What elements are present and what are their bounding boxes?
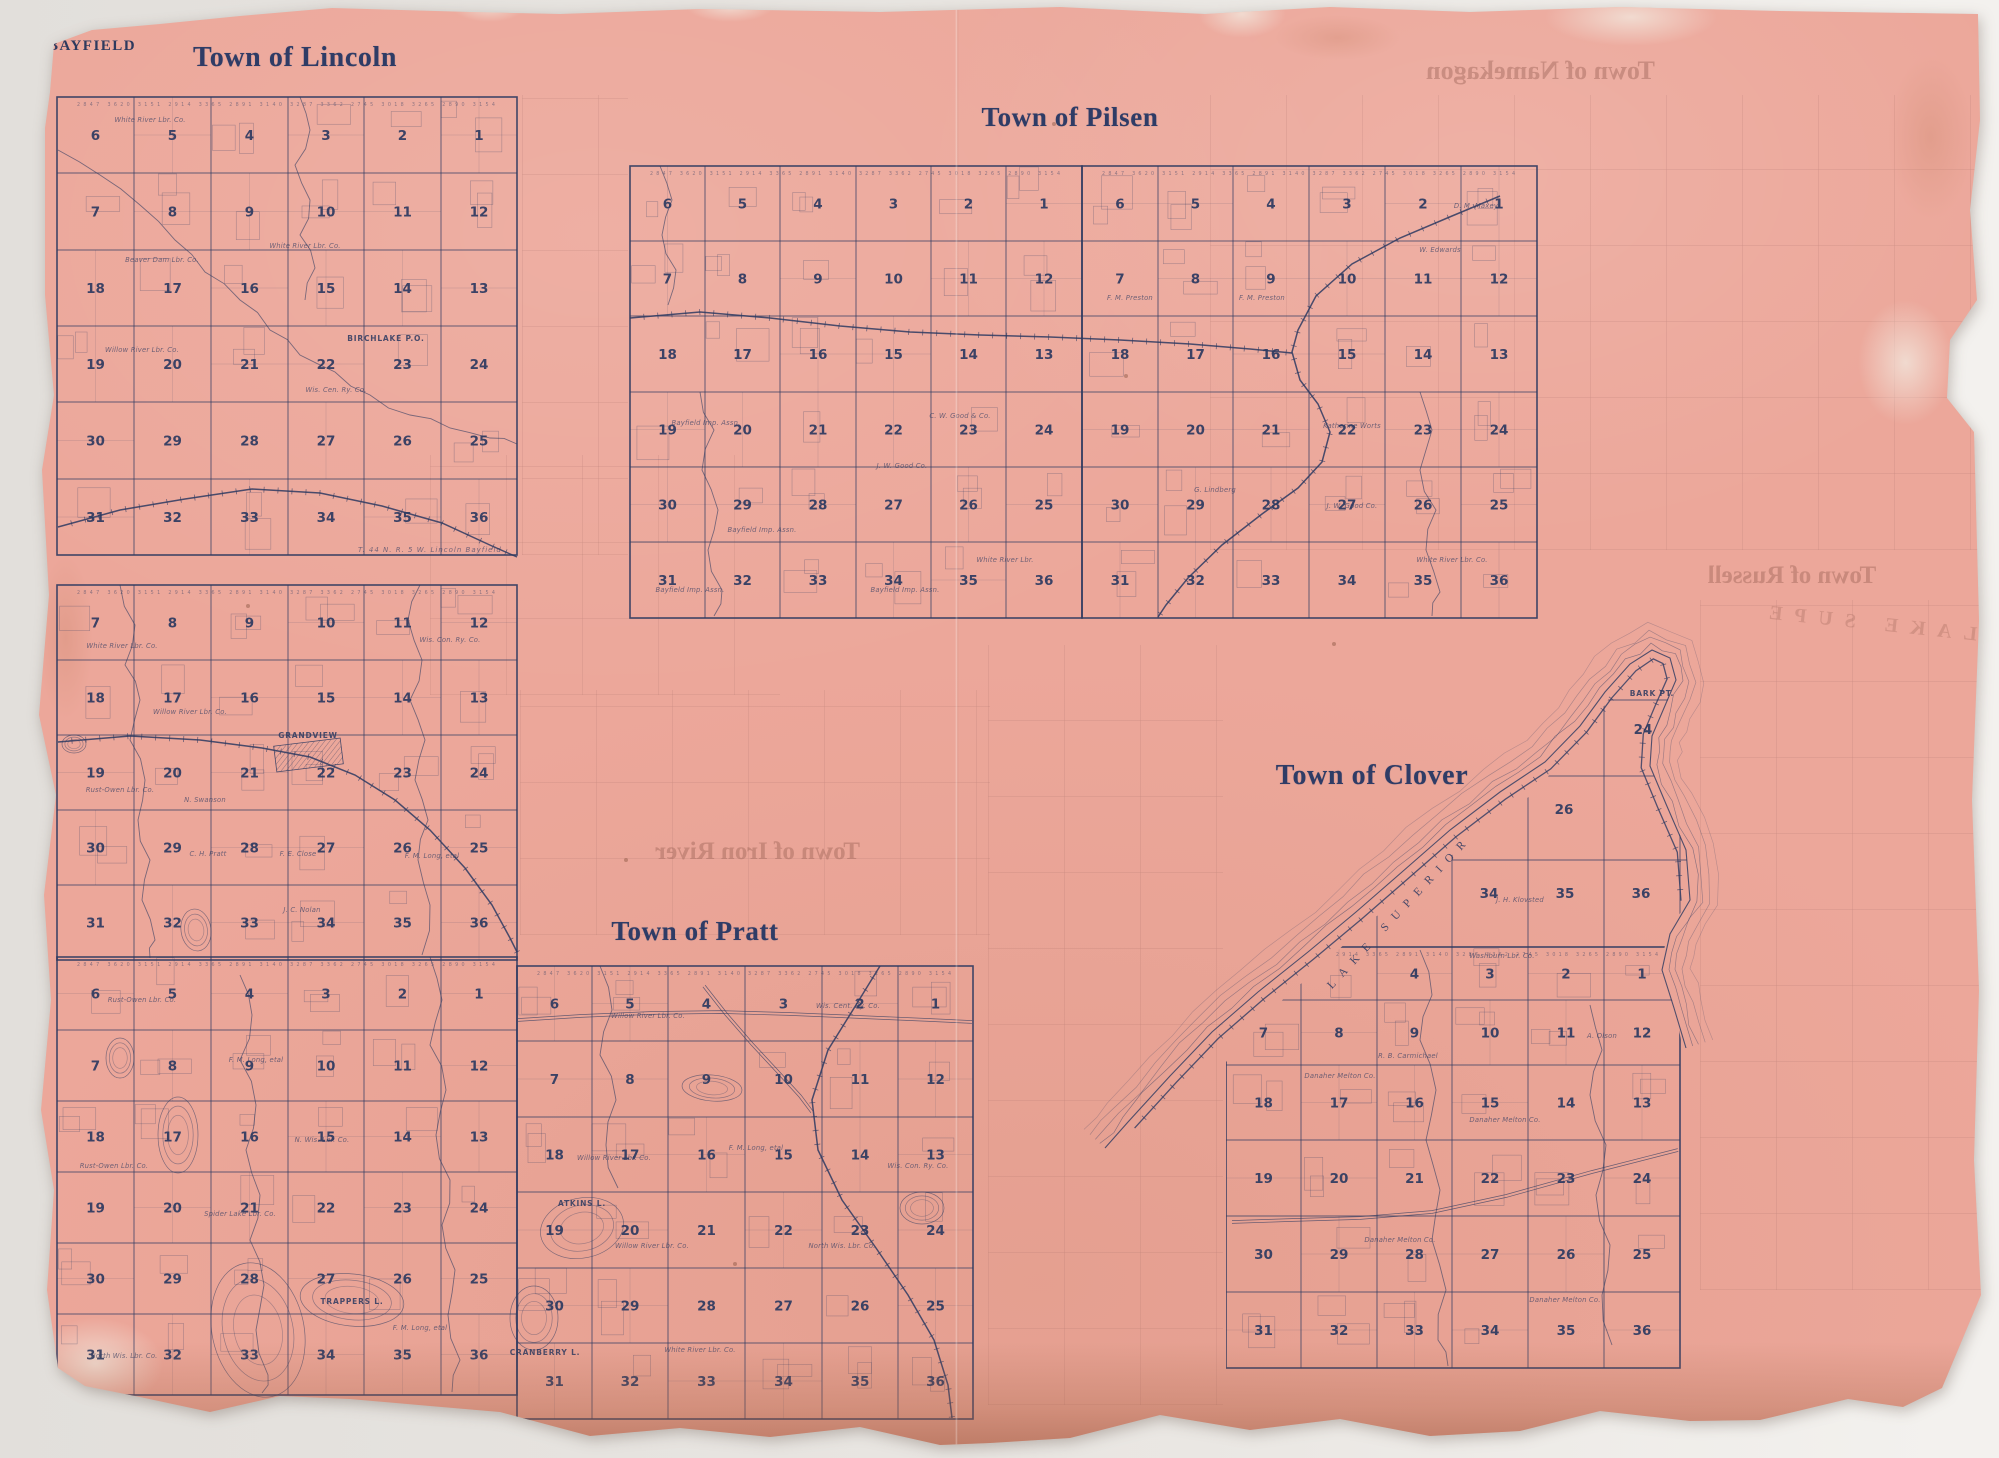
section-number: 16 bbox=[240, 691, 259, 707]
section-number: 17 bbox=[163, 691, 182, 707]
section-number: 14 bbox=[851, 1148, 870, 1164]
section-number: 27 bbox=[317, 841, 336, 857]
section-number: 24 bbox=[1490, 423, 1509, 439]
section-number: 2 bbox=[964, 197, 973, 213]
section-number: 11 bbox=[851, 1072, 870, 1088]
owner-label: Danaher Melton Co. bbox=[1304, 1072, 1375, 1080]
section-number: 35 bbox=[959, 573, 978, 589]
section-number: 7 bbox=[91, 205, 100, 221]
section-number: 24 bbox=[1633, 1171, 1652, 1187]
section-number: 5 bbox=[738, 197, 747, 213]
owner-label: Willow River Lbr. Co. bbox=[153, 708, 227, 716]
section-number: 34 bbox=[1338, 573, 1357, 589]
section-number: 18 bbox=[86, 1130, 105, 1146]
section-number: 12 bbox=[470, 1059, 489, 1075]
section-number: 14 bbox=[393, 691, 412, 707]
owner-label: W. Edwards bbox=[1419, 246, 1461, 254]
section-number: 2 bbox=[1561, 967, 1570, 983]
section-number: 24 bbox=[470, 1201, 489, 1217]
section-number: 11 bbox=[393, 1059, 412, 1075]
section-number: 14 bbox=[393, 1130, 412, 1146]
section-number: 24 bbox=[470, 357, 489, 373]
section-number: 4 bbox=[1410, 967, 1419, 983]
section-number: 7 bbox=[550, 1072, 559, 1088]
owner-label: G. Lindberg bbox=[1194, 486, 1236, 494]
section-number: 6 bbox=[550, 997, 559, 1013]
section-number: 8 bbox=[1191, 272, 1200, 288]
section-number: 21 bbox=[809, 423, 828, 439]
section-number: 28 bbox=[240, 841, 259, 857]
section-number: 9 bbox=[245, 205, 254, 221]
section-number: 25 bbox=[470, 841, 489, 857]
owner-label: N. Swanson bbox=[184, 796, 226, 804]
center-fold-crease bbox=[955, 0, 959, 1458]
section-number: 18 bbox=[86, 691, 105, 707]
section-number: 3 bbox=[889, 197, 898, 213]
section-number: 10 bbox=[1338, 272, 1357, 288]
map-title-pilsen: Town of Pilsen bbox=[975, 102, 1165, 133]
acreage-figures: 2847 3620 3151 2914 3365 2891 3140 3287 … bbox=[77, 102, 497, 108]
section-number: 16 bbox=[240, 281, 259, 297]
section-number: 32 bbox=[733, 573, 752, 589]
section-number: 7 bbox=[91, 1059, 100, 1075]
section-number: 13 bbox=[1633, 1096, 1652, 1112]
owner-label: Wis. Con. Ry. Co. bbox=[887, 1162, 948, 1170]
section-number: 26 bbox=[959, 498, 978, 514]
section-number: 14 bbox=[959, 347, 978, 363]
section-number: 7 bbox=[91, 616, 100, 632]
section-number: 1 bbox=[474, 987, 483, 1003]
section-number: 5 bbox=[1191, 197, 1200, 213]
owner-label: North Wis. Lbr. Co. bbox=[808, 1242, 875, 1250]
owner-label: F. M. Long, etal bbox=[229, 1056, 284, 1064]
section-number: 11 bbox=[959, 272, 978, 288]
section-number: 36 bbox=[1035, 573, 1054, 589]
owner-label: Willow River Lbr. Co. bbox=[615, 1242, 689, 1250]
owner-label: Willow River Lbr. Co. bbox=[611, 1012, 685, 1020]
section-number: 20 bbox=[163, 357, 182, 373]
section-number: 8 bbox=[625, 1072, 634, 1088]
owner-label: J. C. Nolan bbox=[281, 906, 320, 914]
owner-label: Willow River Lbr. Co. bbox=[105, 346, 179, 354]
section-number: 35 bbox=[1556, 886, 1575, 902]
section-number: 27 bbox=[317, 434, 336, 450]
township-map-clover: 2847 3620 3151 2914 3365 2891 3140 3287 … bbox=[1084, 622, 1719, 1368]
section-number: 29 bbox=[163, 841, 182, 857]
section-number: 29 bbox=[1330, 1247, 1349, 1263]
section-number: 14 bbox=[1557, 1096, 1576, 1112]
owner-label: Danaher Melton Co. bbox=[1469, 1116, 1540, 1124]
map-title-lincoln: Town of Lincoln bbox=[190, 42, 400, 74]
section-number: 27 bbox=[1338, 498, 1357, 514]
section-number: 16 bbox=[240, 1130, 259, 1146]
section-number: 27 bbox=[884, 498, 903, 514]
section-number: 28 bbox=[1262, 498, 1281, 514]
map-title-pratt: Town of Pratt bbox=[606, 916, 784, 947]
section-number: 29 bbox=[163, 434, 182, 450]
section-number: 29 bbox=[163, 1272, 182, 1288]
section-number: 11 bbox=[1557, 1026, 1576, 1042]
section-number: 23 bbox=[1414, 423, 1433, 439]
section-number: 25 bbox=[1633, 1247, 1652, 1263]
section-number: 11 bbox=[1414, 272, 1433, 288]
section-number: 23 bbox=[393, 766, 412, 782]
owner-label: A. Olson bbox=[1586, 1032, 1617, 1040]
township-maps-canvas: 2847 3620 3151 2914 3365 2891 3140 3287 … bbox=[0, 0, 1999, 1458]
section-number: 34 bbox=[1481, 1323, 1500, 1339]
section-number: 22 bbox=[317, 1201, 336, 1217]
section-number: 1 bbox=[931, 997, 940, 1013]
map-title-clover: Town of Clover bbox=[1272, 760, 1472, 792]
section-number: 19 bbox=[86, 1201, 105, 1217]
section-number: 28 bbox=[1405, 1247, 1424, 1263]
section-number: 17 bbox=[163, 281, 182, 297]
section-number: 15 bbox=[317, 691, 336, 707]
section-number: 29 bbox=[621, 1299, 640, 1315]
plat-paper-sheet: Town of NamekagonTown of RussellTown of … bbox=[0, 0, 1999, 1458]
section-number: 20 bbox=[163, 766, 182, 782]
section-number: 36 bbox=[1632, 886, 1651, 902]
owner-label: Rust-Owen Lbr. Co. bbox=[108, 996, 177, 1004]
owner-label: Washburn Lbr. Co. bbox=[1469, 952, 1534, 960]
section-number: 30 bbox=[86, 1272, 105, 1288]
owner-label: White River Lbr. Co. bbox=[86, 642, 157, 650]
section-number: 16 bbox=[1262, 347, 1281, 363]
section-number: 26 bbox=[1557, 1247, 1576, 1263]
section-number: 3 bbox=[1485, 967, 1494, 983]
owner-label: Wis. Con. Ry. Co. bbox=[419, 636, 480, 644]
section-number: 12 bbox=[1490, 272, 1509, 288]
section-number: 3 bbox=[321, 128, 330, 144]
section-number: 13 bbox=[1035, 347, 1054, 363]
section-number: 16 bbox=[1405, 1096, 1424, 1112]
section-number: 3 bbox=[321, 987, 330, 1003]
section-number: 18 bbox=[1111, 347, 1130, 363]
section-number: 33 bbox=[1262, 573, 1281, 589]
section-number: 21 bbox=[1262, 423, 1281, 439]
section-number: 6 bbox=[91, 987, 100, 1003]
section-number: 36 bbox=[470, 916, 489, 932]
owner-label: White River Lbr. bbox=[976, 556, 1033, 564]
section-number: 11 bbox=[393, 205, 412, 221]
section-number: 19 bbox=[1111, 423, 1130, 439]
section-number: 30 bbox=[1111, 498, 1130, 514]
section-number: 30 bbox=[1254, 1247, 1273, 1263]
section-number: 32 bbox=[163, 510, 182, 526]
owner-label: Danaher Melton Co. bbox=[1529, 1296, 1600, 1304]
section-number: 21 bbox=[1405, 1171, 1424, 1187]
owner-label: Wis. Cent. Ry. Co. bbox=[816, 1002, 880, 1010]
section-number: 17 bbox=[1186, 347, 1205, 363]
section-number: 4 bbox=[813, 197, 822, 213]
section-number: 21 bbox=[697, 1223, 716, 1239]
owner-label: Danaher Melton Co. bbox=[1364, 1236, 1435, 1244]
section-number: 15 bbox=[317, 281, 336, 297]
section-number: 12 bbox=[926, 1072, 945, 1088]
section-number: 24 bbox=[926, 1223, 945, 1239]
acreage-figures: 2847 3620 3151 2914 3365 2891 3140 3287 … bbox=[1102, 171, 1517, 177]
section-number: 4 bbox=[245, 128, 254, 144]
owner-label: Bayfield Imp. Assn. bbox=[656, 586, 725, 594]
owner-label: F. E. Close bbox=[280, 850, 317, 858]
section-number: 14 bbox=[1414, 347, 1433, 363]
section-number: 6 bbox=[91, 128, 100, 144]
section-number: 21 bbox=[240, 766, 259, 782]
section-number: 1 bbox=[1637, 967, 1646, 983]
section-number: 28 bbox=[240, 434, 259, 450]
section-number: 36 bbox=[1633, 1323, 1652, 1339]
section-number: 7 bbox=[663, 272, 672, 288]
section-number: 26 bbox=[393, 1272, 412, 1288]
section-number: 25 bbox=[470, 1272, 489, 1288]
water-hachure bbox=[1095, 637, 1703, 1139]
section-number: 18 bbox=[1254, 1096, 1273, 1112]
section-number: 24 bbox=[1035, 423, 1054, 439]
scanned-plat-page: Town of NamekagonTown of RussellTown of … bbox=[0, 0, 1999, 1458]
section-number: 16 bbox=[809, 347, 828, 363]
owner-label: F. M. Long, etal bbox=[393, 1324, 448, 1332]
section-number: 24 bbox=[470, 766, 489, 782]
section-number: 18 bbox=[86, 281, 105, 297]
section-number: 30 bbox=[86, 434, 105, 450]
section-number: 9 bbox=[1266, 272, 1275, 288]
section-number: 25 bbox=[1035, 498, 1054, 514]
section-number: 13 bbox=[1490, 347, 1509, 363]
section-number: 21 bbox=[240, 357, 259, 373]
section-number: 22 bbox=[1481, 1171, 1500, 1187]
owner-label: J. W. Good Co. bbox=[875, 462, 928, 470]
place-label: ATKINS L. bbox=[558, 1199, 606, 1208]
section-number: 28 bbox=[697, 1299, 716, 1315]
section-number: 33 bbox=[240, 510, 259, 526]
section-number: 29 bbox=[733, 498, 752, 514]
owner-label: Bayfield Imp. Assn. bbox=[672, 419, 741, 427]
section-number: 26 bbox=[393, 434, 412, 450]
section-number: 36 bbox=[1490, 573, 1509, 589]
section-number: 25 bbox=[470, 434, 489, 450]
place-label: BIRCHLAKE P.O. bbox=[347, 334, 424, 343]
section-number: 12 bbox=[1035, 272, 1054, 288]
section-number: 13 bbox=[470, 281, 489, 297]
section-number: 13 bbox=[470, 691, 489, 707]
section-number: 27 bbox=[774, 1299, 793, 1315]
section-number: 22 bbox=[884, 423, 903, 439]
section-number: 1 bbox=[1039, 197, 1048, 213]
section-number: 8 bbox=[738, 272, 747, 288]
owner-label: F. M. Preston bbox=[1107, 294, 1153, 302]
section-number: 1 bbox=[1494, 197, 1503, 213]
section-number: 1 bbox=[474, 128, 483, 144]
section-number: 2 bbox=[1418, 197, 1427, 213]
section-number: 20 bbox=[163, 1201, 182, 1217]
section-number: 17 bbox=[163, 1130, 182, 1146]
section-number: 35 bbox=[1414, 573, 1433, 589]
township-range-caption: T. 44 N. R. 5 W. Lincoln Bayfield bbox=[358, 546, 588, 554]
section-number: 16 bbox=[697, 1148, 716, 1164]
section-number: 13 bbox=[470, 1130, 489, 1146]
lake-shoreline bbox=[1105, 650, 1690, 1148]
section-number: 9 bbox=[702, 1072, 711, 1088]
section-number: 10 bbox=[884, 272, 903, 288]
place-label: BARK PT. bbox=[1630, 689, 1674, 698]
section-number: 3 bbox=[1342, 197, 1351, 213]
section-number: 26 bbox=[1414, 498, 1433, 514]
place-label: TRAPPERS L. bbox=[320, 1297, 383, 1306]
owner-label: F. M. Long, etal bbox=[729, 1144, 784, 1152]
section-number: 8 bbox=[168, 616, 177, 632]
section-number: 25 bbox=[1490, 498, 1509, 514]
section-number: 33 bbox=[809, 573, 828, 589]
county-name-label: BAYFIELD bbox=[48, 38, 136, 55]
section-number: 7 bbox=[1259, 1026, 1268, 1042]
section-number: 9 bbox=[813, 272, 822, 288]
township-map-lincoln-south: 2847 3620 3151 2914 3365 2891 3140 3287 … bbox=[57, 585, 520, 960]
section-number: 36 bbox=[470, 510, 489, 526]
section-number: 12 bbox=[1633, 1026, 1652, 1042]
section-number: 31 bbox=[1254, 1323, 1273, 1339]
section-number: 18 bbox=[545, 1148, 564, 1164]
section-number: 28 bbox=[240, 1272, 259, 1288]
section-number: 32 bbox=[163, 916, 182, 932]
section-number: 8 bbox=[168, 1059, 177, 1075]
section-number: 28 bbox=[809, 498, 828, 514]
section-number: 29 bbox=[1186, 498, 1205, 514]
section-number: 15 bbox=[884, 347, 903, 363]
owner-label: F. M. Long, etal bbox=[405, 852, 460, 860]
section-number: 30 bbox=[86, 841, 105, 857]
section-number: 26 bbox=[851, 1299, 870, 1315]
section-number: 17 bbox=[1330, 1096, 1349, 1112]
section-number: 10 bbox=[1481, 1026, 1500, 1042]
acreage-figures: 2847 3620 3151 2914 3365 2891 3140 3287 … bbox=[77, 590, 497, 596]
section-number: 35 bbox=[1557, 1323, 1576, 1339]
section-number: 31 bbox=[86, 916, 105, 932]
place-label: GRANDVIEW bbox=[278, 731, 337, 740]
acreage-figures: 2847 3620 3151 2914 3365 2891 3140 3287 … bbox=[537, 971, 953, 977]
section-number: 9 bbox=[245, 616, 254, 632]
owner-label: Wis. Cen. Ry. Co. bbox=[305, 386, 366, 394]
acreage-figures: 2847 3620 3151 2914 3365 2891 3140 3287 … bbox=[77, 962, 497, 968]
section-number: 14 bbox=[393, 281, 412, 297]
section-number: 31 bbox=[1111, 573, 1130, 589]
section-number: 30 bbox=[658, 498, 677, 514]
section-number: 2 bbox=[398, 987, 407, 1003]
section-number: 32 bbox=[1186, 573, 1205, 589]
section-number: 17 bbox=[733, 347, 752, 363]
section-number: 2 bbox=[398, 128, 407, 144]
section-number: 5 bbox=[625, 997, 634, 1013]
section-number: 6 bbox=[1115, 197, 1124, 213]
section-number: 3 bbox=[779, 997, 788, 1013]
owner-label: Spider Lake Lbr. Co. bbox=[204, 1210, 276, 1218]
section-number: 12 bbox=[470, 205, 489, 221]
section-number: 22 bbox=[1338, 423, 1357, 439]
owner-label: Bayfield Imp. Assn. bbox=[871, 586, 940, 594]
owner-label: C. H. Pratt bbox=[189, 850, 226, 858]
section-number: 15 bbox=[1481, 1096, 1500, 1112]
township-map-lincoln: 2847 3620 3151 2914 3365 2891 3140 3287 … bbox=[57, 97, 517, 557]
township-map-pilsen-east: 2847 3620 3151 2914 3365 2891 3140 3287 … bbox=[1082, 166, 1537, 618]
section-number: 4 bbox=[1266, 197, 1275, 213]
owner-label: Rust-Owen Lbr. Co. bbox=[80, 1162, 149, 1170]
bottom-edge-discoloration bbox=[0, 1342, 1999, 1448]
section-number: 27 bbox=[1481, 1247, 1500, 1263]
owner-label: White River Lbr. Co. bbox=[269, 242, 340, 250]
section-number: 35 bbox=[393, 916, 412, 932]
section-number: 25 bbox=[926, 1299, 945, 1315]
owner-label: Beaver Dam Lbr. Co. bbox=[125, 256, 199, 264]
section-number: 7 bbox=[1115, 272, 1124, 288]
owner-label: Rust-Owen Lbr. Co. bbox=[86, 786, 155, 794]
section-number: 10 bbox=[317, 1059, 336, 1075]
owner-label: C. W. Good & Co. bbox=[929, 412, 990, 420]
section-number: 10 bbox=[317, 205, 336, 221]
owner-label: J. H. Klovsted bbox=[1494, 896, 1544, 904]
section-number: 34 bbox=[317, 510, 336, 526]
section-number: 33 bbox=[1405, 1323, 1424, 1339]
section-number: 34 bbox=[317, 916, 336, 932]
section-number: 20 bbox=[1186, 423, 1205, 439]
section-number: 9 bbox=[1410, 1026, 1419, 1042]
section-number: 10 bbox=[317, 616, 336, 632]
section-number: 18 bbox=[658, 347, 677, 363]
owner-label: Bayfield Imp. Assn. bbox=[728, 526, 797, 534]
owner-label: F. M. Preston bbox=[1239, 294, 1285, 302]
owner-label: R. B. Carmichael bbox=[1378, 1052, 1438, 1060]
section-number: 32 bbox=[1330, 1323, 1349, 1339]
section-number: 19 bbox=[1254, 1171, 1273, 1187]
section-number: 8 bbox=[1334, 1026, 1343, 1042]
section-number: 20 bbox=[1330, 1171, 1349, 1187]
owner-label: White River Lbr. Co. bbox=[1416, 556, 1487, 564]
section-number: 15 bbox=[1338, 347, 1357, 363]
section-number: 8 bbox=[168, 205, 177, 221]
section-number: 23 bbox=[959, 423, 978, 439]
section-number: 26 bbox=[1555, 802, 1574, 818]
owner-label: Willow River Lbr. Co. bbox=[577, 1154, 651, 1162]
township-map-lincoln-southwest: 2847 3620 3151 2914 3365 2891 3140 3287 … bbox=[57, 957, 517, 1406]
owner-label: White River Lbr. Co. bbox=[114, 116, 185, 124]
section-number: 22 bbox=[774, 1223, 793, 1239]
section-number: 23 bbox=[393, 357, 412, 373]
acreage-figures: 2847 3620 3151 2914 3365 2891 3140 3287 … bbox=[650, 171, 1062, 177]
acreage-figures: 2847 3620 3151 2914 3365 2891 3140 3287 … bbox=[1246, 952, 1660, 958]
owner-label: N. Wis. Lbr. Co. bbox=[295, 1136, 350, 1144]
section-number: 4 bbox=[702, 997, 711, 1013]
section-number: 19 bbox=[86, 766, 105, 782]
section-number: 19 bbox=[86, 357, 105, 373]
section-number: 33 bbox=[240, 916, 259, 932]
section-number: 5 bbox=[168, 128, 177, 144]
paper-shadow-wrap: Town of NamekagonTown of RussellTown of … bbox=[0, 0, 1999, 1458]
section-number: 12 bbox=[470, 616, 489, 632]
section-number: 23 bbox=[393, 1201, 412, 1217]
section-number: 22 bbox=[317, 766, 336, 782]
